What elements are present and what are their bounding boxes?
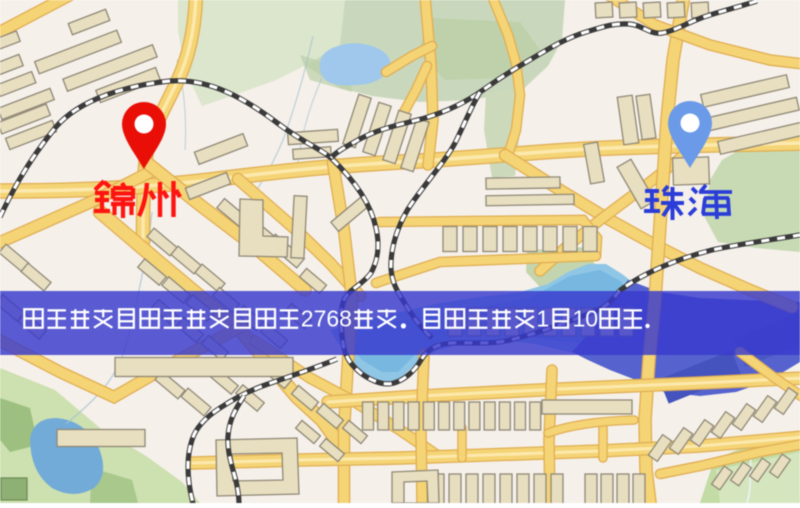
- svg-text:1: 1: [536, 305, 549, 331]
- svg-text:10: 10: [573, 305, 599, 331]
- svg-text:2768: 2768: [301, 305, 352, 331]
